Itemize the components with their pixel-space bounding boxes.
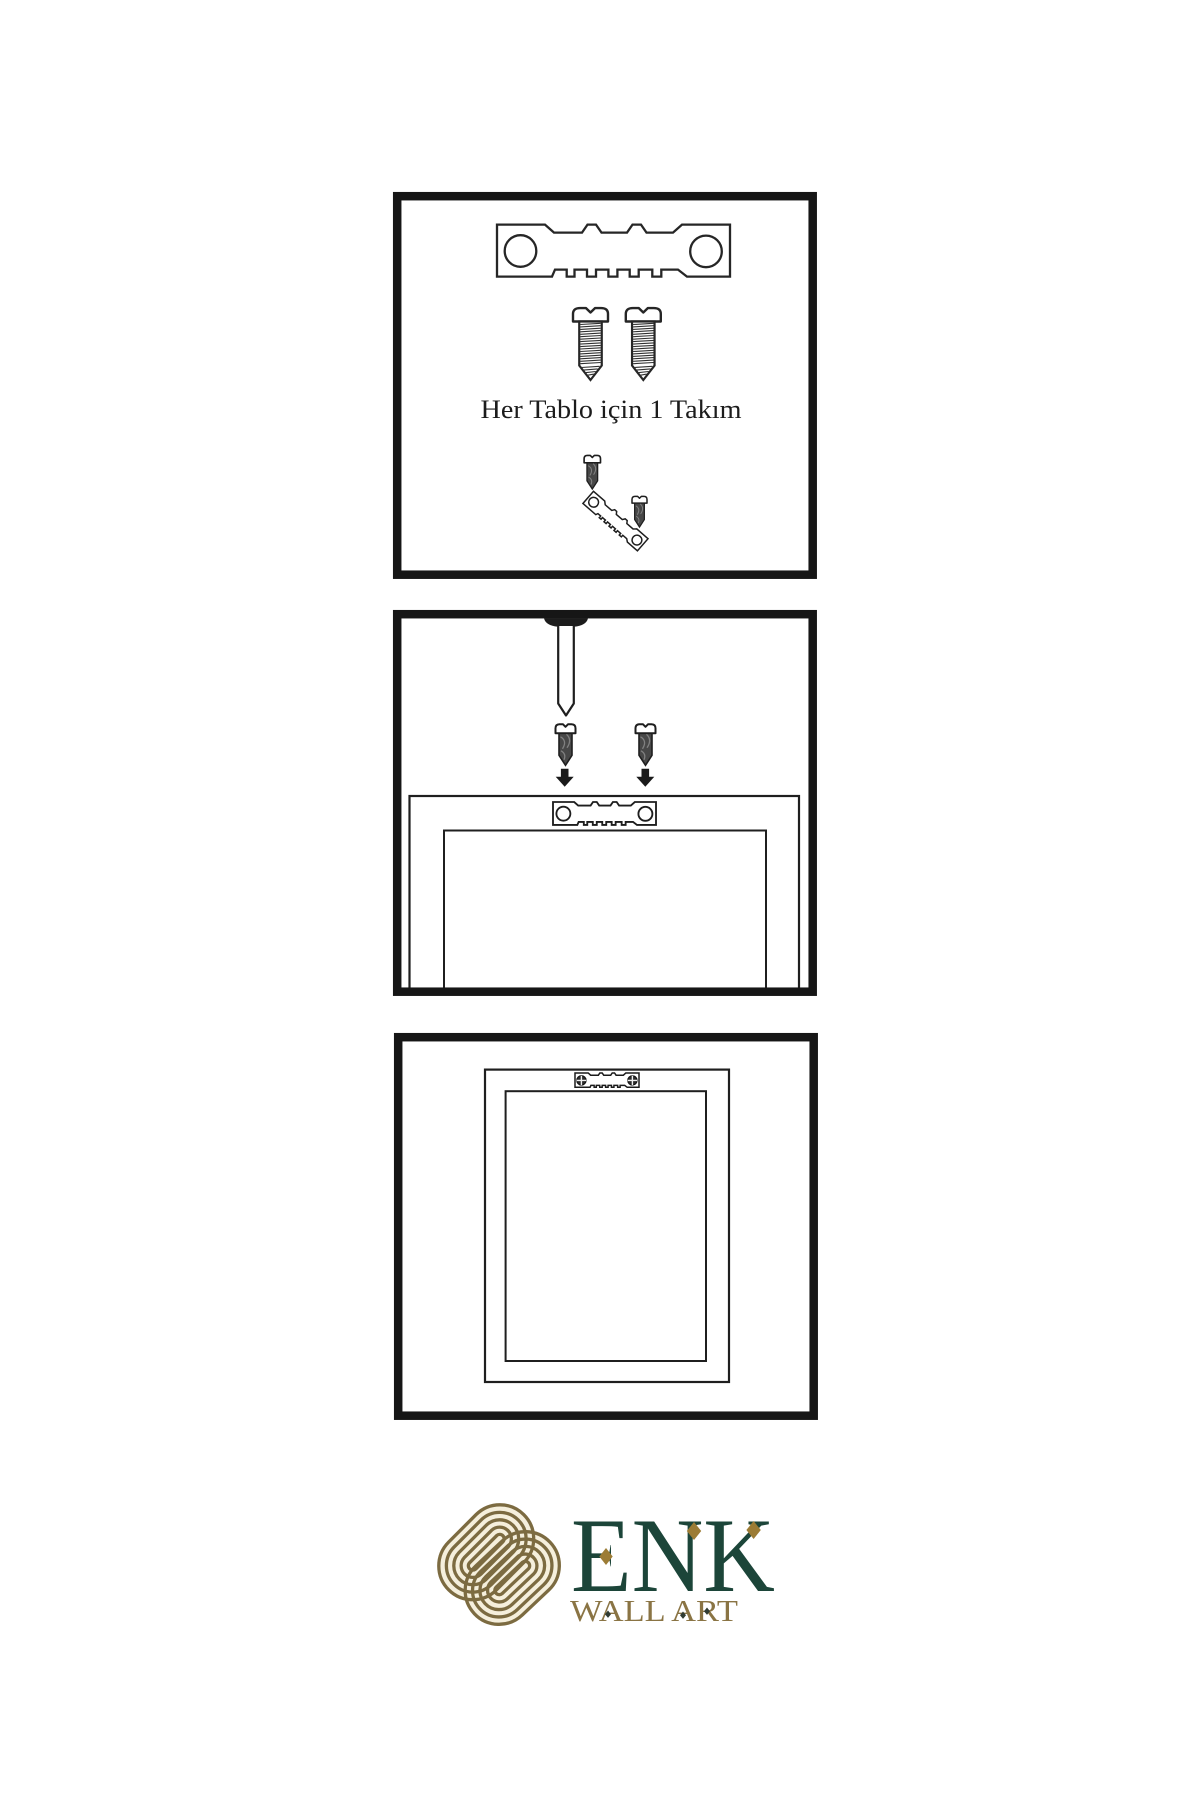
svg-text:WALL ART: WALL ART (570, 1593, 738, 1628)
svg-text:Her Tablo için 1 Takım: Her Tablo için 1 Takım (481, 394, 742, 424)
